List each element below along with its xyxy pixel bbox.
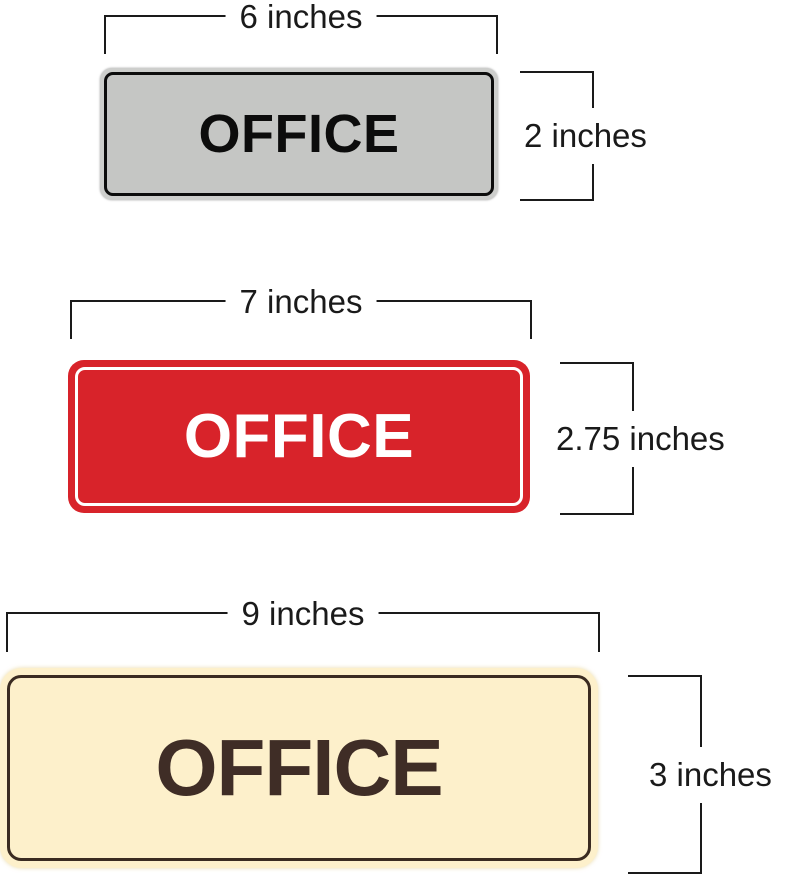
office-sign-red-7x2-75: OFFICE xyxy=(68,360,530,513)
width-dimension-bracket-7in: 7 inches xyxy=(70,300,532,339)
height-dimension-bracket-3in: 3 inches xyxy=(628,675,702,874)
office-sign-cream-9x3: OFFICE xyxy=(0,668,598,868)
sign-text: OFFICE xyxy=(199,103,400,165)
height-dimension-label: 2.75 inches xyxy=(552,411,729,467)
width-dimension-label: 6 inches xyxy=(226,0,377,36)
sign-text: OFFICE xyxy=(155,722,442,814)
height-dimension-label: 2 inches xyxy=(520,108,651,164)
width-dimension-bracket-9in: 9 inches xyxy=(6,612,600,652)
height-dimension-bracket-2-75in: 2.75 inches xyxy=(560,362,634,515)
width-dimension-label: 7 inches xyxy=(226,283,377,321)
height-dimension-bracket-2in: 2 inches xyxy=(520,71,594,201)
sign-text: OFFICE xyxy=(184,401,414,472)
width-dimension-bracket-6in: 6 inches xyxy=(104,15,498,54)
office-sign-gray-6x2: OFFICE xyxy=(100,68,498,200)
height-dimension-label: 3 inches xyxy=(645,747,776,803)
product-dimension-diagram: 6 inches OFFICE 2 inches 7 inches OFFICE… xyxy=(0,0,795,876)
width-dimension-label: 9 inches xyxy=(228,595,379,633)
